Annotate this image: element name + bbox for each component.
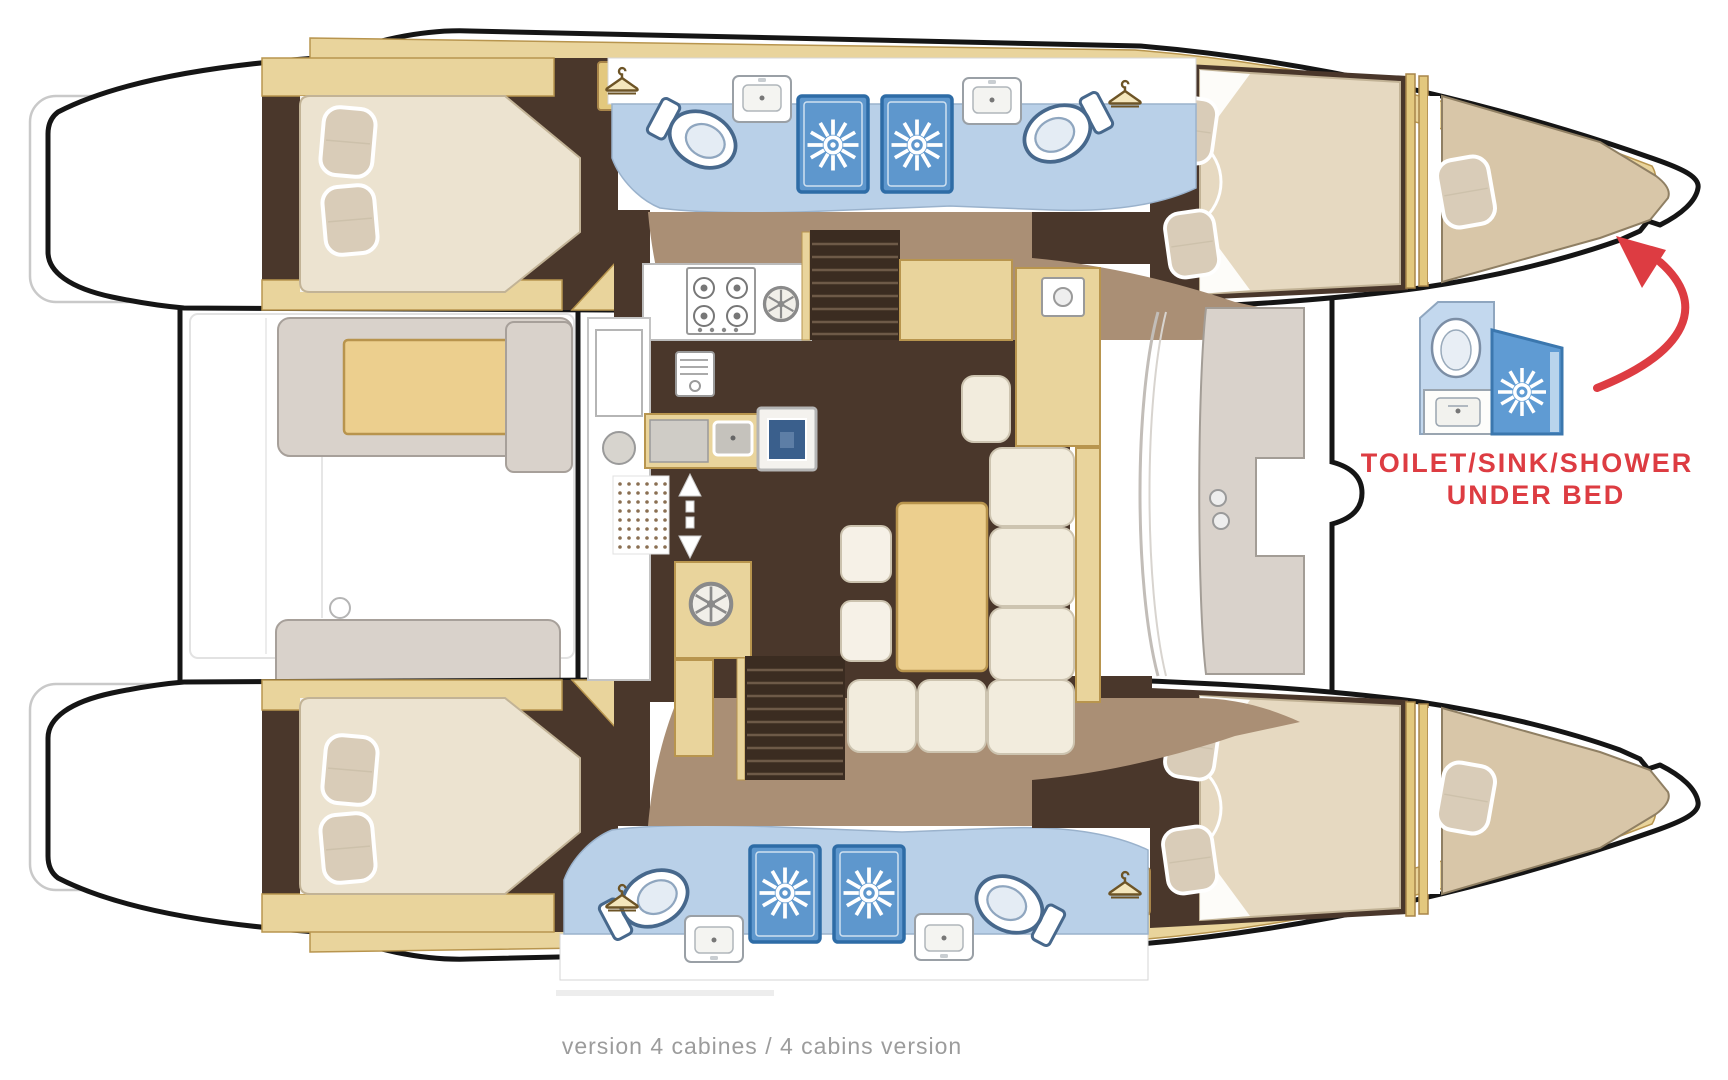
cockpit-table: [344, 340, 516, 434]
shower-icon: [1492, 330, 1562, 434]
starboard-bathroom: [560, 825, 1148, 980]
tv-frame: [758, 408, 816, 470]
saloon-table: [897, 503, 987, 671]
inset-bathroom-diagram: [1420, 302, 1562, 434]
stool: [841, 526, 891, 582]
oven-icon: [676, 352, 714, 396]
stairs-port-icon: [802, 230, 900, 340]
galley-cabinet: [1016, 268, 1100, 446]
faint-artifact: [556, 990, 774, 996]
sink-icon: [1424, 390, 1494, 434]
deck-fitting: [1213, 513, 1229, 529]
caption: version 4 cabines / 4 cabins version: [562, 1033, 962, 1059]
toilet-icon: [1432, 319, 1480, 377]
annotation-line2: UNDER BED: [1447, 480, 1626, 510]
aft-cockpit: [190, 314, 574, 702]
burner-wheel-icon: [765, 288, 798, 321]
stairs-starboard-icon: [737, 656, 845, 780]
catamaran-floor-plan: TOILET/SINK/SHOWER UNDER BED version 4 c…: [0, 0, 1728, 1080]
sink-round-icon: [603, 432, 635, 464]
curved-arrow-icon: [1597, 236, 1685, 388]
table-leg: [330, 598, 350, 618]
port-bathroom: [608, 58, 1196, 213]
sink-round-icon: [1054, 288, 1072, 306]
deck-fitting: [1210, 490, 1226, 506]
stove-icon: [687, 268, 755, 334]
stool: [841, 601, 891, 661]
vent-fan-icon: [691, 584, 732, 625]
cockpit-side-seat: [506, 322, 572, 472]
annotation-line1: TOILET/SINK/SHOWER: [1361, 448, 1694, 478]
entry-mat: [613, 476, 669, 554]
page: TOILET/SINK/SHOWER UNDER BED version 4 c…: [0, 0, 1728, 1080]
